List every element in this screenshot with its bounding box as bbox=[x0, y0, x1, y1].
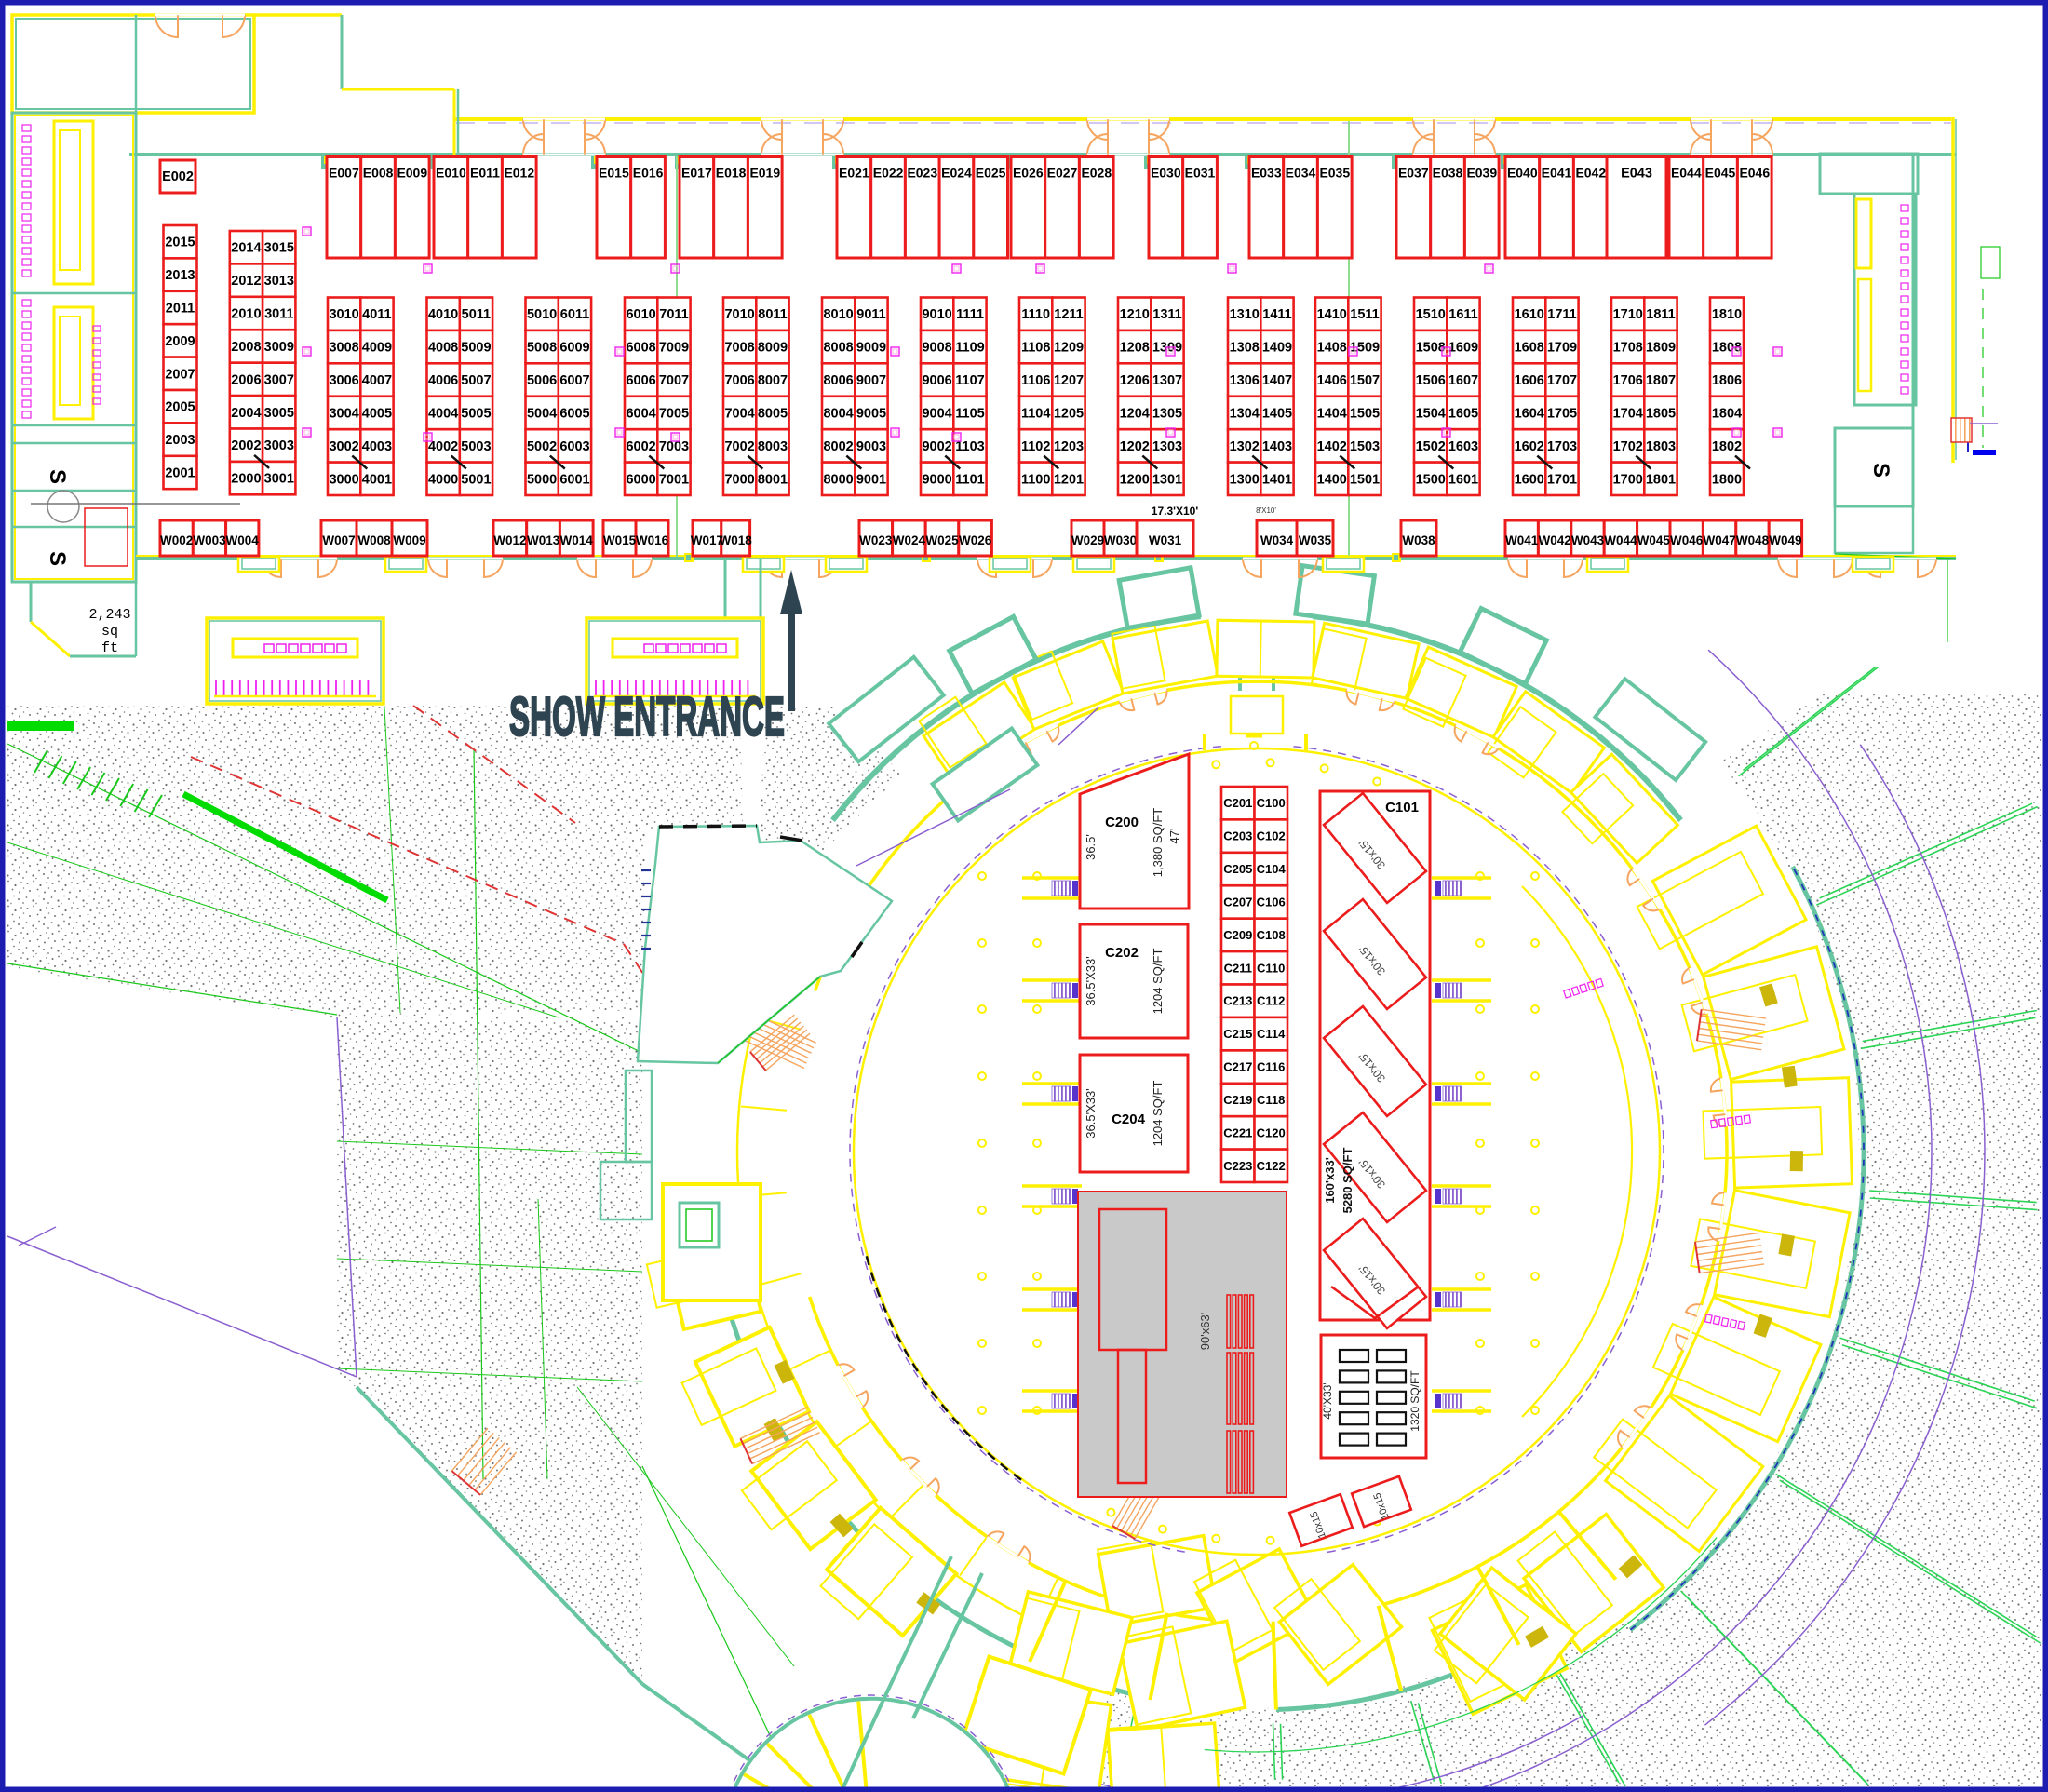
svg-text:1402: 1402 bbox=[1317, 439, 1347, 454]
svg-text:4001: 4001 bbox=[362, 472, 392, 487]
svg-text:7009: 7009 bbox=[659, 341, 689, 356]
svg-text:1605: 1605 bbox=[1448, 407, 1478, 422]
svg-text:1800: 1800 bbox=[1712, 472, 1742, 487]
svg-text:W043: W043 bbox=[1571, 533, 1605, 547]
svg-text:E038: E038 bbox=[1433, 166, 1463, 181]
svg-text:7011: 7011 bbox=[659, 307, 688, 322]
svg-text:1210: 1210 bbox=[1120, 307, 1150, 322]
svg-text:1108: 1108 bbox=[1021, 341, 1050, 356]
svg-text:1106: 1106 bbox=[1021, 373, 1050, 388]
svg-text:W042: W042 bbox=[1538, 533, 1570, 547]
svg-text:E039: E039 bbox=[1466, 166, 1497, 181]
svg-text:E034: E034 bbox=[1286, 166, 1316, 181]
svg-text:E026: E026 bbox=[1013, 166, 1044, 181]
svg-text:1507: 1507 bbox=[1350, 373, 1380, 388]
svg-text:W018: W018 bbox=[720, 533, 753, 547]
svg-text:36.5'X33': 36.5'X33' bbox=[1084, 1088, 1098, 1138]
svg-text:C219: C219 bbox=[1223, 1093, 1252, 1107]
svg-text:8010: 8010 bbox=[823, 307, 853, 322]
svg-text:E011: E011 bbox=[470, 166, 500, 181]
svg-text:C207: C207 bbox=[1223, 896, 1252, 909]
svg-text:S: S bbox=[1868, 463, 1893, 478]
svg-text:1200: 1200 bbox=[1120, 472, 1150, 487]
svg-text:E009: E009 bbox=[397, 166, 427, 181]
svg-text:E037: E037 bbox=[1398, 166, 1429, 181]
svg-text:6003: 6003 bbox=[559, 439, 589, 454]
svg-text:6011: 6011 bbox=[560, 307, 589, 322]
svg-text:1301: 1301 bbox=[1152, 472, 1182, 487]
svg-text:W024: W024 bbox=[893, 533, 926, 547]
svg-text:1,380 SQ/FT: 1,380 SQ/FT bbox=[1151, 808, 1165, 877]
svg-text:1400: 1400 bbox=[1317, 472, 1347, 487]
svg-text:C101: C101 bbox=[1385, 800, 1419, 815]
svg-text:W025: W025 bbox=[925, 533, 959, 547]
svg-text:1209: 1209 bbox=[1054, 341, 1084, 356]
svg-text:9010: 9010 bbox=[922, 307, 951, 322]
svg-text:E040: E040 bbox=[1507, 166, 1538, 181]
svg-text:1404: 1404 bbox=[1317, 407, 1347, 422]
svg-text:8005: 8005 bbox=[758, 407, 788, 422]
svg-text:W047: W047 bbox=[1703, 533, 1735, 547]
svg-text:9007: 9007 bbox=[856, 373, 886, 388]
svg-text:C204: C204 bbox=[1112, 1112, 1146, 1127]
svg-text:9009: 9009 bbox=[856, 341, 886, 356]
svg-text:4003: 4003 bbox=[362, 439, 392, 454]
svg-text:W044: W044 bbox=[1604, 533, 1637, 547]
svg-text:7010: 7010 bbox=[724, 307, 754, 322]
svg-text:1206: 1206 bbox=[1120, 373, 1150, 388]
svg-text:4000: 4000 bbox=[428, 472, 458, 487]
svg-text:E017: E017 bbox=[681, 166, 712, 181]
svg-text:3011: 3011 bbox=[264, 307, 293, 322]
svg-text:C200: C200 bbox=[1105, 815, 1139, 830]
svg-text:5010: 5010 bbox=[527, 307, 557, 322]
svg-text:1502: 1502 bbox=[1416, 439, 1446, 454]
svg-text:9005: 9005 bbox=[856, 407, 886, 422]
svg-text:W007: W007 bbox=[322, 533, 355, 547]
svg-text:1306: 1306 bbox=[1230, 373, 1260, 388]
svg-text:7005: 7005 bbox=[659, 407, 689, 422]
svg-text:W049: W049 bbox=[1769, 533, 1801, 547]
svg-text:6002: 6002 bbox=[626, 439, 655, 454]
svg-text:4007: 4007 bbox=[362, 373, 392, 388]
svg-text:1607: 1607 bbox=[1448, 373, 1478, 388]
svg-text:C205: C205 bbox=[1223, 862, 1252, 876]
svg-text:1205: 1205 bbox=[1054, 407, 1084, 422]
svg-text:1705: 1705 bbox=[1547, 407, 1577, 422]
svg-text:W016: W016 bbox=[636, 533, 669, 547]
svg-text:2011: 2011 bbox=[166, 302, 195, 317]
svg-text:C215: C215 bbox=[1223, 1027, 1252, 1041]
svg-text:1100: 1100 bbox=[1021, 472, 1050, 487]
svg-text:SHOW ENTRANCE: SHOW ENTRANCE bbox=[509, 686, 785, 748]
svg-text:W015: W015 bbox=[603, 533, 637, 547]
svg-text:1305: 1305 bbox=[1152, 407, 1182, 422]
svg-text:4008: 4008 bbox=[428, 341, 458, 356]
svg-text:1610: 1610 bbox=[1515, 307, 1544, 322]
svg-text:C223: C223 bbox=[1223, 1159, 1252, 1173]
svg-text:6001: 6001 bbox=[559, 472, 589, 487]
svg-text:C201: C201 bbox=[1223, 796, 1252, 810]
svg-text:4002: 4002 bbox=[428, 439, 458, 454]
svg-text:3015: 3015 bbox=[264, 241, 294, 256]
svg-text:7001: 7001 bbox=[659, 472, 689, 487]
svg-text:E021: E021 bbox=[839, 166, 869, 181]
svg-text:1406: 1406 bbox=[1317, 373, 1347, 388]
svg-text:9006: 9006 bbox=[922, 373, 951, 388]
svg-text:2014: 2014 bbox=[231, 241, 261, 256]
svg-text:40'X33': 40'X33' bbox=[1321, 1382, 1334, 1419]
svg-text:1601: 1601 bbox=[1448, 472, 1478, 487]
svg-text:6009: 6009 bbox=[559, 341, 589, 356]
svg-text:1608: 1608 bbox=[1515, 341, 1544, 356]
svg-text:1310: 1310 bbox=[1230, 307, 1260, 322]
svg-text:E010: E010 bbox=[436, 166, 466, 181]
svg-text:1204 SQ/FT: 1204 SQ/FT bbox=[1151, 1081, 1165, 1147]
svg-text:1409: 1409 bbox=[1262, 341, 1292, 356]
svg-text:1503: 1503 bbox=[1350, 439, 1380, 454]
svg-text:1807: 1807 bbox=[1646, 373, 1676, 388]
svg-text:1504: 1504 bbox=[1416, 407, 1446, 422]
svg-text:2009: 2009 bbox=[165, 334, 195, 349]
svg-text:1611: 1611 bbox=[1448, 307, 1477, 322]
svg-text:1501: 1501 bbox=[1350, 472, 1380, 487]
svg-text:8000: 8000 bbox=[823, 472, 853, 487]
svg-text:E028: E028 bbox=[1081, 166, 1112, 181]
svg-text:S: S bbox=[45, 551, 70, 566]
svg-text:1700: 1700 bbox=[1613, 472, 1643, 487]
svg-text:8008: 8008 bbox=[823, 341, 853, 356]
svg-text:2003: 2003 bbox=[165, 433, 195, 448]
svg-text:2015: 2015 bbox=[165, 236, 195, 250]
svg-text:1307: 1307 bbox=[1152, 373, 1182, 388]
svg-text:4010: 4010 bbox=[428, 307, 458, 322]
svg-text:W008: W008 bbox=[357, 533, 391, 547]
svg-text:7002: 7002 bbox=[724, 439, 754, 454]
svg-text:E045: E045 bbox=[1705, 166, 1736, 181]
svg-text:3005: 3005 bbox=[264, 406, 294, 421]
svg-text:C213: C213 bbox=[1223, 994, 1252, 1008]
svg-text:3001: 3001 bbox=[264, 472, 294, 487]
svg-text:1303: 1303 bbox=[1152, 439, 1182, 454]
svg-text:1411: 1411 bbox=[1262, 307, 1291, 322]
svg-text:4006: 4006 bbox=[428, 373, 458, 388]
svg-text:1709: 1709 bbox=[1547, 341, 1577, 356]
svg-text:9011: 9011 bbox=[856, 307, 885, 322]
svg-text:36.5'X33': 36.5'X33' bbox=[1084, 956, 1098, 1005]
svg-text:C118: C118 bbox=[1257, 1093, 1285, 1107]
svg-text:1204: 1204 bbox=[1120, 407, 1150, 422]
svg-text:1109: 1109 bbox=[955, 341, 984, 356]
svg-text:4004: 4004 bbox=[428, 407, 458, 422]
svg-text:W045: W045 bbox=[1637, 533, 1671, 547]
svg-text:1603: 1603 bbox=[1448, 439, 1478, 454]
svg-text:1810: 1810 bbox=[1712, 307, 1742, 322]
svg-text:1405: 1405 bbox=[1262, 407, 1292, 422]
svg-text:4009: 4009 bbox=[362, 341, 392, 356]
svg-text:C217: C217 bbox=[1223, 1060, 1252, 1074]
svg-text:1208: 1208 bbox=[1120, 341, 1150, 356]
svg-text:1805: 1805 bbox=[1646, 407, 1676, 422]
svg-text:E015: E015 bbox=[599, 166, 629, 181]
svg-text:3006: 3006 bbox=[329, 373, 358, 388]
svg-text:6008: 6008 bbox=[626, 341, 655, 356]
svg-text:3013: 3013 bbox=[264, 274, 294, 289]
svg-text:1707: 1707 bbox=[1547, 373, 1577, 388]
svg-text:W026: W026 bbox=[959, 533, 992, 547]
svg-text:8009: 8009 bbox=[758, 341, 788, 356]
svg-text:E018: E018 bbox=[716, 166, 747, 181]
svg-text:2002: 2002 bbox=[231, 438, 261, 453]
svg-text:W029: W029 bbox=[1071, 533, 1104, 547]
svg-text:W038: W038 bbox=[1402, 533, 1435, 547]
svg-text:E024: E024 bbox=[941, 166, 972, 181]
svg-text:6006: 6006 bbox=[626, 373, 655, 388]
svg-text:1211: 1211 bbox=[1054, 307, 1083, 322]
svg-text:1811: 1811 bbox=[1646, 307, 1675, 322]
svg-text:1801: 1801 bbox=[1646, 472, 1676, 487]
svg-text:3003: 3003 bbox=[264, 438, 294, 453]
svg-text:17.3'X10': 17.3'X10' bbox=[1152, 505, 1199, 518]
svg-text:2004: 2004 bbox=[231, 406, 261, 421]
svg-text:E030: E030 bbox=[1151, 166, 1181, 181]
svg-text:C203: C203 bbox=[1223, 829, 1252, 843]
svg-text:sq: sq bbox=[101, 624, 118, 640]
svg-text:5001: 5001 bbox=[461, 472, 491, 487]
svg-text:1703: 1703 bbox=[1547, 439, 1577, 454]
svg-text:C100: C100 bbox=[1257, 796, 1286, 810]
svg-text:5008: 5008 bbox=[527, 341, 557, 356]
svg-text:2006: 2006 bbox=[231, 372, 261, 387]
svg-text:1708: 1708 bbox=[1613, 341, 1643, 356]
svg-text:5000: 5000 bbox=[527, 472, 557, 487]
svg-text:C116: C116 bbox=[1257, 1060, 1285, 1074]
svg-text:E042: E042 bbox=[1575, 166, 1606, 181]
svg-text:5003: 5003 bbox=[461, 439, 491, 454]
svg-text:3009: 3009 bbox=[264, 340, 294, 355]
svg-text:E007: E007 bbox=[329, 166, 359, 181]
svg-text:1803: 1803 bbox=[1646, 439, 1676, 454]
svg-text:6000: 6000 bbox=[626, 472, 655, 487]
svg-text:W013: W013 bbox=[527, 533, 560, 547]
svg-text:C114: C114 bbox=[1257, 1027, 1286, 1041]
svg-text:7000: 7000 bbox=[724, 472, 754, 487]
svg-text:8004: 8004 bbox=[823, 407, 853, 422]
svg-text:C122: C122 bbox=[1257, 1159, 1286, 1173]
svg-text:E043: E043 bbox=[1621, 167, 1652, 182]
svg-text:W035: W035 bbox=[1299, 533, 1332, 547]
svg-text:8003: 8003 bbox=[758, 439, 788, 454]
svg-text:8001: 8001 bbox=[758, 472, 788, 487]
svg-text:W004: W004 bbox=[226, 533, 260, 547]
svg-text:E041: E041 bbox=[1542, 166, 1572, 181]
svg-text:1110: 1110 bbox=[1021, 307, 1050, 322]
svg-text:160'x33': 160'x33' bbox=[1323, 1157, 1337, 1204]
svg-text:9001: 9001 bbox=[856, 472, 886, 487]
svg-text:9000: 9000 bbox=[922, 472, 951, 487]
svg-text:4011: 4011 bbox=[362, 307, 391, 322]
svg-text:2001: 2001 bbox=[165, 466, 195, 481]
svg-text:C110: C110 bbox=[1257, 961, 1285, 975]
svg-text:1105: 1105 bbox=[955, 407, 984, 422]
svg-text:1500: 1500 bbox=[1416, 472, 1446, 487]
svg-text:1311: 1311 bbox=[1152, 307, 1181, 322]
svg-text:90'x63': 90'x63' bbox=[1198, 1313, 1212, 1350]
svg-text:1308: 1308 bbox=[1230, 341, 1260, 356]
svg-text:1711: 1711 bbox=[1547, 307, 1576, 322]
svg-text:E027: E027 bbox=[1047, 166, 1078, 181]
svg-text:W009: W009 bbox=[393, 533, 425, 547]
svg-text:C102: C102 bbox=[1257, 829, 1286, 843]
svg-text:5280 SQ/FT: 5280 SQ/FT bbox=[1341, 1148, 1354, 1214]
svg-text:6007: 6007 bbox=[559, 373, 589, 388]
svg-text:C112: C112 bbox=[1257, 994, 1285, 1008]
svg-text:W041: W041 bbox=[1505, 533, 1539, 547]
svg-text:9002: 9002 bbox=[922, 439, 951, 454]
svg-text:9008: 9008 bbox=[922, 341, 951, 356]
svg-text:7008: 7008 bbox=[724, 341, 754, 356]
svg-text:6010: 6010 bbox=[626, 307, 655, 322]
svg-text:C120: C120 bbox=[1257, 1125, 1286, 1139]
svg-text:1101: 1101 bbox=[955, 472, 984, 487]
svg-text:1107: 1107 bbox=[955, 373, 984, 388]
svg-text:1401: 1401 bbox=[1262, 472, 1292, 487]
svg-text:E022: E022 bbox=[873, 166, 904, 181]
svg-text:3008: 3008 bbox=[329, 341, 358, 356]
svg-text:E008: E008 bbox=[363, 166, 394, 181]
svg-text:W046: W046 bbox=[1670, 533, 1704, 547]
svg-text:1300: 1300 bbox=[1230, 472, 1260, 487]
svg-text:4005: 4005 bbox=[362, 407, 392, 422]
svg-text:3007: 3007 bbox=[264, 372, 294, 387]
svg-text:E012: E012 bbox=[504, 166, 534, 181]
svg-text:W048: W048 bbox=[1736, 533, 1770, 547]
svg-text:1704: 1704 bbox=[1613, 407, 1643, 422]
svg-text:1407: 1407 bbox=[1262, 373, 1292, 388]
svg-text:5006: 5006 bbox=[527, 373, 557, 388]
svg-text:ft: ft bbox=[101, 640, 118, 656]
svg-text:W003: W003 bbox=[193, 533, 226, 547]
svg-text:36.5': 36.5' bbox=[1084, 834, 1098, 860]
svg-text:7004: 7004 bbox=[724, 407, 754, 422]
svg-text:E033: E033 bbox=[1251, 166, 1282, 181]
svg-text:1102: 1102 bbox=[1021, 439, 1050, 454]
svg-text:2005: 2005 bbox=[165, 400, 195, 415]
svg-text:3004: 3004 bbox=[329, 407, 358, 422]
svg-text:1403: 1403 bbox=[1262, 439, 1292, 454]
svg-text:W012: W012 bbox=[493, 533, 526, 547]
svg-text:S: S bbox=[45, 469, 70, 484]
svg-text:1302: 1302 bbox=[1230, 439, 1260, 454]
svg-text:E002: E002 bbox=[162, 169, 194, 184]
svg-text:C108: C108 bbox=[1257, 928, 1286, 942]
svg-text:1204 SQ/FT: 1204 SQ/FT bbox=[1151, 949, 1165, 1015]
svg-text:2012: 2012 bbox=[231, 274, 261, 289]
svg-text:1609: 1609 bbox=[1448, 341, 1478, 356]
svg-text:W031: W031 bbox=[1149, 533, 1182, 547]
svg-text:1408: 1408 bbox=[1317, 341, 1347, 356]
svg-text:1508: 1508 bbox=[1416, 341, 1446, 356]
svg-text:E035: E035 bbox=[1319, 166, 1350, 181]
svg-text:E023: E023 bbox=[907, 166, 937, 181]
svg-text:1201: 1201 bbox=[1054, 472, 1084, 487]
svg-text:2,243: 2,243 bbox=[88, 607, 130, 623]
svg-text:3010: 3010 bbox=[329, 307, 358, 322]
svg-text:5004: 5004 bbox=[527, 407, 557, 422]
svg-text:9004: 9004 bbox=[922, 407, 951, 422]
svg-text:2010: 2010 bbox=[231, 307, 261, 322]
svg-text:1706: 1706 bbox=[1613, 373, 1643, 388]
svg-text:W002: W002 bbox=[160, 533, 193, 547]
svg-text:6005: 6005 bbox=[559, 407, 589, 422]
svg-text:W014: W014 bbox=[560, 533, 594, 547]
svg-text:5007: 5007 bbox=[461, 373, 491, 388]
svg-text:E025: E025 bbox=[976, 166, 1006, 181]
svg-text:E046: E046 bbox=[1739, 166, 1770, 181]
svg-text:5011: 5011 bbox=[462, 307, 491, 322]
svg-text:1511: 1511 bbox=[1350, 307, 1379, 322]
svg-text:8011: 8011 bbox=[758, 307, 787, 322]
svg-text:1804: 1804 bbox=[1712, 407, 1742, 422]
svg-text:1602: 1602 bbox=[1515, 439, 1544, 454]
svg-text:C106: C106 bbox=[1257, 896, 1286, 909]
svg-text:1104: 1104 bbox=[1021, 407, 1050, 422]
svg-text:2008: 2008 bbox=[231, 340, 261, 355]
svg-text:C202: C202 bbox=[1105, 945, 1139, 961]
svg-text:1702: 1702 bbox=[1613, 439, 1643, 454]
svg-text:1710: 1710 bbox=[1613, 307, 1643, 322]
svg-text:9003: 9003 bbox=[856, 439, 886, 454]
svg-text:W023: W023 bbox=[859, 533, 893, 547]
svg-text:E031: E031 bbox=[1185, 166, 1216, 181]
svg-text:C209: C209 bbox=[1223, 928, 1252, 942]
svg-text:2013: 2013 bbox=[165, 268, 195, 283]
svg-text:C221: C221 bbox=[1223, 1125, 1252, 1139]
svg-text:47': 47' bbox=[1167, 829, 1181, 844]
svg-text:1510: 1510 bbox=[1416, 307, 1446, 322]
svg-text:E019: E019 bbox=[749, 166, 780, 181]
svg-text:1604: 1604 bbox=[1515, 407, 1544, 422]
svg-text:5005: 5005 bbox=[461, 407, 491, 422]
svg-text:5002: 5002 bbox=[527, 439, 557, 454]
svg-text:8'X10': 8'X10' bbox=[1256, 506, 1276, 515]
svg-text:2000: 2000 bbox=[231, 472, 261, 487]
svg-text:3000: 3000 bbox=[329, 472, 358, 487]
svg-text:C104: C104 bbox=[1257, 862, 1287, 876]
svg-text:1600: 1600 bbox=[1515, 472, 1544, 487]
svg-text:W034: W034 bbox=[1260, 533, 1294, 547]
svg-text:1320 SQ/FT: 1320 SQ/FT bbox=[1408, 1370, 1421, 1432]
svg-text:6004: 6004 bbox=[626, 407, 655, 422]
svg-text:3002: 3002 bbox=[329, 439, 358, 454]
svg-text:1111: 1111 bbox=[956, 307, 984, 322]
svg-text:5009: 5009 bbox=[461, 341, 491, 356]
svg-text:E044: E044 bbox=[1671, 166, 1702, 181]
svg-text:1505: 1505 bbox=[1350, 407, 1380, 422]
svg-text:W030: W030 bbox=[1104, 533, 1137, 547]
svg-text:1203: 1203 bbox=[1054, 439, 1084, 454]
svg-text:E016: E016 bbox=[633, 166, 664, 181]
svg-text:1202: 1202 bbox=[1120, 439, 1150, 454]
svg-text:8007: 8007 bbox=[758, 373, 788, 388]
svg-text:1701: 1701 bbox=[1547, 472, 1577, 487]
svg-text:1410: 1410 bbox=[1317, 307, 1347, 322]
svg-text:2007: 2007 bbox=[165, 367, 195, 382]
svg-text:1802: 1802 bbox=[1712, 439, 1742, 454]
svg-text:8006: 8006 bbox=[823, 373, 853, 388]
svg-text:1506: 1506 bbox=[1416, 373, 1446, 388]
svg-text:7006: 7006 bbox=[724, 373, 754, 388]
